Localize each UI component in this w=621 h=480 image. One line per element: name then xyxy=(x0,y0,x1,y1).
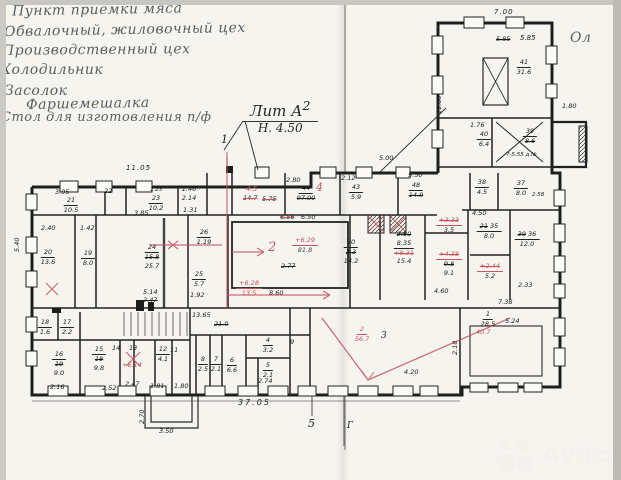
dim-1-81: 1.81 xyxy=(150,383,164,391)
dim-2-74: 2.74 xyxy=(258,378,272,386)
room-32-label: +4.389.89.1 xyxy=(436,250,462,277)
room-21-label: 2110.5 xyxy=(64,196,78,215)
room-13-label: 13 xyxy=(129,345,137,353)
room-31-label: 2.808.35+8.3115.4 xyxy=(394,230,414,266)
dim-4-20: 4.20 xyxy=(404,369,418,377)
room-6-label: 66.6 xyxy=(227,356,237,375)
dim-5-85: 5.85 xyxy=(520,34,536,42)
room-24-label: 2415.825.7 xyxy=(145,243,159,270)
dim-1-31: 1.31 xyxy=(183,207,197,215)
dim-2-40: 2.40 xyxy=(41,225,55,233)
dim-1-76: 1.76 xyxy=(470,122,484,130)
red-room-4-mark: 4 xyxy=(316,181,323,194)
porch xyxy=(145,395,198,428)
dim-2-12: 2.12 xyxy=(341,175,355,183)
dim-6-56-struck: 6.56 xyxy=(280,214,294,222)
avito-wordmark: Avito xyxy=(542,444,611,467)
dim-5-85-struck: 5.85 xyxy=(496,36,510,44)
dim-5-24: 5.24 xyxy=(505,318,519,326)
dim-1-80b: 1.80 xyxy=(174,383,188,391)
room-23-label: 2310.2 xyxy=(149,194,163,213)
room-18-label: 181.6 xyxy=(38,318,52,337)
room-36-label: 39 3612.0 xyxy=(515,230,540,249)
room-43-label: 435.9 xyxy=(349,183,363,202)
room-40-label: 406.4 xyxy=(477,130,491,149)
room-26-label: 261.19 xyxy=(197,228,211,247)
dim-13-65: 13.65 xyxy=(192,312,211,320)
dim-2-33: 2.33 xyxy=(518,282,532,290)
stairs xyxy=(124,312,187,336)
dim-5-00: 5.00 xyxy=(379,155,393,163)
axis-mark-1: 1 xyxy=(221,133,228,146)
room-7-label: 72.1 xyxy=(211,355,221,374)
room-44-label: 4497.00 xyxy=(297,184,316,203)
room-35-label: 21 358.0 xyxy=(477,222,502,241)
outer-walls xyxy=(32,23,586,395)
freezer-unit xyxy=(483,58,508,105)
room-22-label: 22 xyxy=(104,188,112,196)
scan-border-right xyxy=(613,0,621,480)
room-1-label: 128.5 xyxy=(481,310,495,329)
dim-1-92: 1.92 xyxy=(190,292,204,300)
room-39-label: 398.6 xyxy=(523,127,537,146)
axis-mark-5: 5 xyxy=(308,417,315,430)
dim-5-50: 5.50 xyxy=(408,172,422,180)
room-12-label: 124.1 xyxy=(156,345,170,364)
dim-4-50: 4.50 xyxy=(472,210,486,218)
dim-14-7-struck: 14.7 xyxy=(243,195,257,203)
room-8-label: 82.5 xyxy=(198,355,208,374)
scan-border-left xyxy=(0,0,6,480)
avito-logo-icon xyxy=(493,435,535,475)
axis-mark-g: Г xyxy=(347,421,353,432)
red-room-2-mark: 2 xyxy=(268,240,276,256)
dim-2-70: 2.70 xyxy=(139,410,147,424)
room-9-label: 9 xyxy=(290,339,294,347)
dim-37-05: 37.05 xyxy=(238,398,271,408)
dim-2-18: 2.18 xyxy=(452,341,460,355)
windows xyxy=(26,17,587,396)
dim-7-38: 7.38 xyxy=(498,299,512,307)
dim-2-47b: 2.47 xyxy=(125,381,139,389)
room-15-label: 15189.8 xyxy=(92,345,106,372)
room-37-label: 378.0 xyxy=(514,179,528,198)
dim-3-85: 3.85 xyxy=(134,210,148,218)
dim-1-80-appendix: 1.80 xyxy=(562,103,576,111)
dim-5-40: 5.40 xyxy=(14,238,22,252)
red-room-1-area: 40.7 xyxy=(476,329,490,337)
room-11-label: 11 xyxy=(170,347,178,355)
room-48-label: 4814.9 xyxy=(409,181,423,200)
room-4-label: 43.2 xyxy=(263,336,273,355)
red-elevation-628: +6.2813.5 xyxy=(236,279,262,298)
dim-3-50: 3.50 xyxy=(159,428,173,436)
room-34-label: +2.445.2 xyxy=(477,262,503,281)
room-14-label: 14 xyxy=(112,345,120,353)
scanned-floorplan-page: Пункт приемки мяса Обвалочный, жиловочны… xyxy=(0,0,621,480)
room-41-label: 4131.6 xyxy=(517,58,531,77)
red-room-2-area: 256.7 xyxy=(355,325,369,344)
dim-2-58: 2.58 xyxy=(532,192,544,199)
dim-2-47-struck: 2.47 xyxy=(143,297,157,305)
room-30-label: 302.314.2 xyxy=(344,238,358,265)
scan-border-top xyxy=(0,0,621,5)
small-room-dims: 1.462.14 xyxy=(182,185,196,203)
dim-1-23: 1.23 xyxy=(150,187,162,194)
dim-11-05: 11.05 xyxy=(126,164,151,172)
room-19-label: 198.0 xyxy=(81,249,95,268)
dim-8-60: 8.60 xyxy=(269,290,283,298)
dim-7-00: 7.00 xyxy=(494,8,514,16)
room-39-note: 7-5.55 д.№ xyxy=(506,152,537,159)
room-25-label: 255.7 xyxy=(192,270,206,289)
red-elevation-614: +6.14 xyxy=(122,362,142,370)
dim-2-52: 2.52 xyxy=(102,385,116,393)
dim-6-50: 6.50 xyxy=(301,214,315,222)
dim-2-77-struck: 2.77 xyxy=(281,263,295,271)
dim-2-16: 2.16 xyxy=(50,384,64,392)
room-17-label: 172.2 xyxy=(60,318,74,337)
dim-5-75-struck: 5.75 xyxy=(262,196,276,204)
dim-1-42: 1.42 xyxy=(80,225,94,233)
room-38-label: 384.5 xyxy=(475,178,489,197)
dim-21-0-struck: 21.0 xyxy=(214,321,228,329)
dim-4-60: 4.60 xyxy=(434,288,448,296)
inner-walls xyxy=(32,118,560,395)
red-elevation-629: +6.2981.8 xyxy=(292,236,318,255)
room-20-label: 2013.6 xyxy=(41,248,55,267)
avito-watermark: Avito xyxy=(493,435,611,475)
room-32-upper-label: +3.333.5 xyxy=(436,216,462,235)
dim-11-80: 11.80 xyxy=(436,95,444,114)
red-dim-4-5: 4.5 xyxy=(246,185,257,193)
room-16-label: 16199.0 xyxy=(52,350,66,377)
room-3-label: 3 xyxy=(381,331,387,342)
